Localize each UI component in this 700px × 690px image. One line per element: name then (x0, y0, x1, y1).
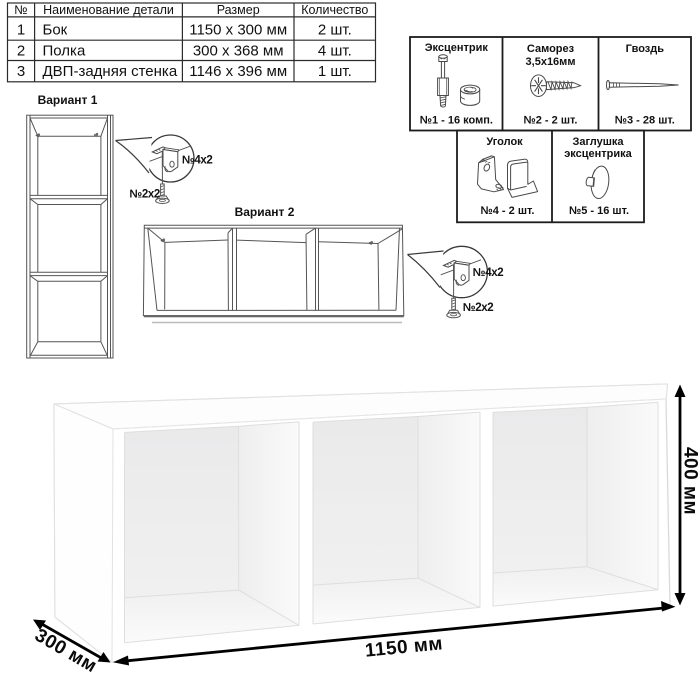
svg-text:4 шт.: 4 шт. (318, 42, 352, 59)
svg-text:№2х2: №2х2 (130, 189, 160, 201)
svg-text:1146 х 396 мм: 1146 х 396 мм (189, 63, 287, 80)
svg-text:Наименование детали: Наименование детали (43, 3, 174, 17)
svg-text:№4 - 2 шт.: №4 - 2 шт. (481, 205, 535, 217)
svg-text:1 шт.: 1 шт. (318, 63, 352, 80)
svg-text:№2х2: №2х2 (463, 302, 493, 314)
svg-text:Бок: Бок (43, 22, 68, 39)
svg-text:Размер: Размер (217, 3, 260, 17)
svg-text:2: 2 (17, 42, 25, 59)
svg-text:400 мм: 400 мм (680, 447, 700, 515)
svg-text:№5 - 16 шт.: №5 - 16 шт. (569, 205, 629, 217)
svg-text:№4х2: №4х2 (473, 267, 503, 279)
svg-text:Заглушка: Заглушка (572, 136, 624, 148)
svg-text:Количество: Количество (301, 3, 368, 17)
svg-text:эксцентрика: эксцентрика (564, 148, 632, 160)
svg-text:Эксцентрик: Эксцентрик (425, 42, 489, 54)
svg-text:3: 3 (17, 63, 25, 80)
svg-text:№3 - 28 шт.: №3 - 28 шт. (615, 115, 675, 127)
svg-text:Вариант 1: Вариант 1 (38, 93, 98, 107)
svg-text:Гвоздь: Гвоздь (626, 43, 665, 55)
svg-text:Саморез: Саморез (527, 43, 575, 55)
svg-text:300 х 368 мм: 300 х 368 мм (193, 42, 284, 59)
svg-text:Вариант 2: Вариант 2 (235, 205, 295, 219)
svg-text:2 шт.: 2 шт. (318, 22, 352, 39)
svg-text:№2 - 2 шт.: №2 - 2 шт. (524, 115, 578, 127)
svg-text:1150 х 300 мм: 1150 х 300 мм (189, 22, 287, 39)
svg-text:№1 - 16 комп.: №1 - 16 комп. (420, 115, 493, 127)
svg-text:№: № (14, 3, 27, 17)
svg-text:№4х2: №4х2 (182, 155, 212, 167)
svg-text:Полка: Полка (43, 42, 86, 59)
svg-text:3,5х16мм: 3,5х16мм (526, 56, 576, 68)
svg-text:ДВП-задняя стенка: ДВП-задняя стенка (43, 63, 178, 80)
svg-text:1: 1 (17, 22, 25, 39)
svg-text:Уголок: Уголок (486, 136, 523, 148)
